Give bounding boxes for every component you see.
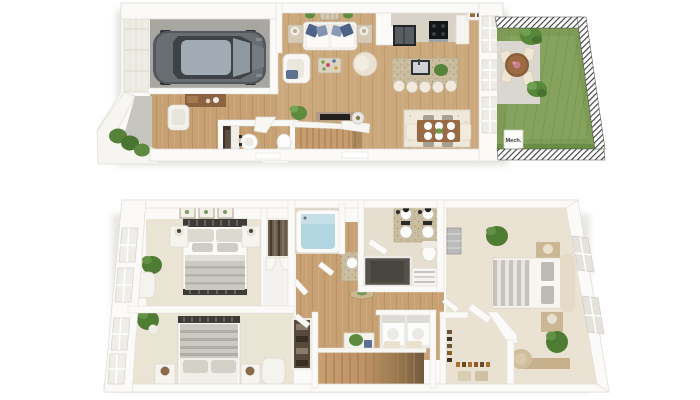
svg-text:Mech.: Mech. (506, 138, 522, 144)
